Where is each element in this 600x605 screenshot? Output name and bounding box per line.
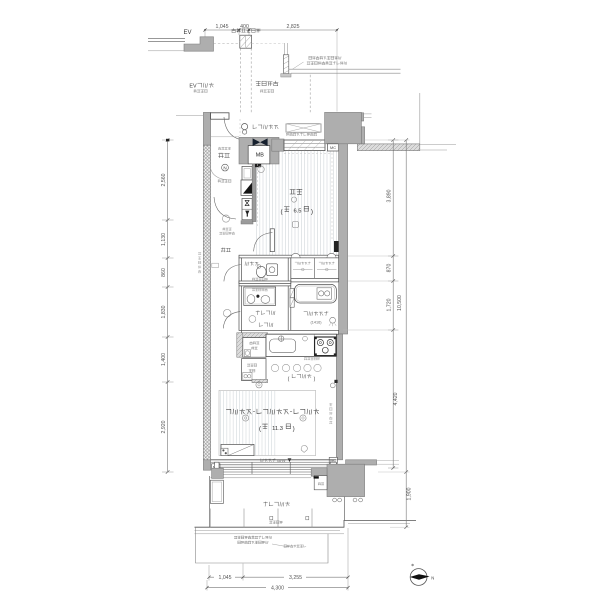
svg-text:870: 870 bbox=[387, 264, 393, 273]
svg-text:EV: EV bbox=[183, 30, 191, 36]
svg-text:MC: MC bbox=[330, 146, 336, 150]
svg-text:11.3: 11.3 bbox=[272, 426, 283, 432]
svg-text:N: N bbox=[431, 575, 434, 580]
svg-text:1,045: 1,045 bbox=[219, 575, 232, 581]
svg-text:4,420: 4,420 bbox=[393, 392, 399, 405]
svg-text:2,920: 2,920 bbox=[161, 420, 167, 433]
svg-text:6.5: 6.5 bbox=[293, 209, 301, 215]
svg-text:(1416): (1416) bbox=[311, 320, 323, 324]
svg-text:2,560: 2,560 bbox=[161, 173, 167, 186]
svg-text:3,255: 3,255 bbox=[289, 575, 302, 581]
svg-text:2,825: 2,825 bbox=[287, 24, 300, 30]
svg-text:): ) bbox=[314, 377, 316, 383]
svg-text:1,400: 1,400 bbox=[161, 353, 167, 366]
svg-text:860: 860 bbox=[161, 268, 167, 277]
svg-text:1,720: 1,720 bbox=[387, 298, 393, 311]
svg-text:N: N bbox=[223, 166, 226, 171]
svg-text:1,130: 1,130 bbox=[161, 233, 167, 246]
svg-text:MB: MB bbox=[256, 153, 264, 159]
svg-text:3,890: 3,890 bbox=[387, 189, 393, 202]
svg-text:1,830: 1,830 bbox=[161, 305, 167, 318]
svg-text:EV: EV bbox=[189, 84, 197, 90]
svg-text:1,045: 1,045 bbox=[216, 24, 229, 30]
svg-text:BOX: BOX bbox=[277, 458, 286, 463]
svg-text:(: ( bbox=[288, 377, 290, 383]
svg-text:10,500: 10,500 bbox=[397, 295, 403, 311]
svg-text:1,900: 1,900 bbox=[406, 487, 412, 500]
svg-text:4,300: 4,300 bbox=[271, 585, 284, 591]
svg-text:): ) bbox=[293, 425, 295, 432]
svg-text:): ) bbox=[311, 208, 313, 215]
